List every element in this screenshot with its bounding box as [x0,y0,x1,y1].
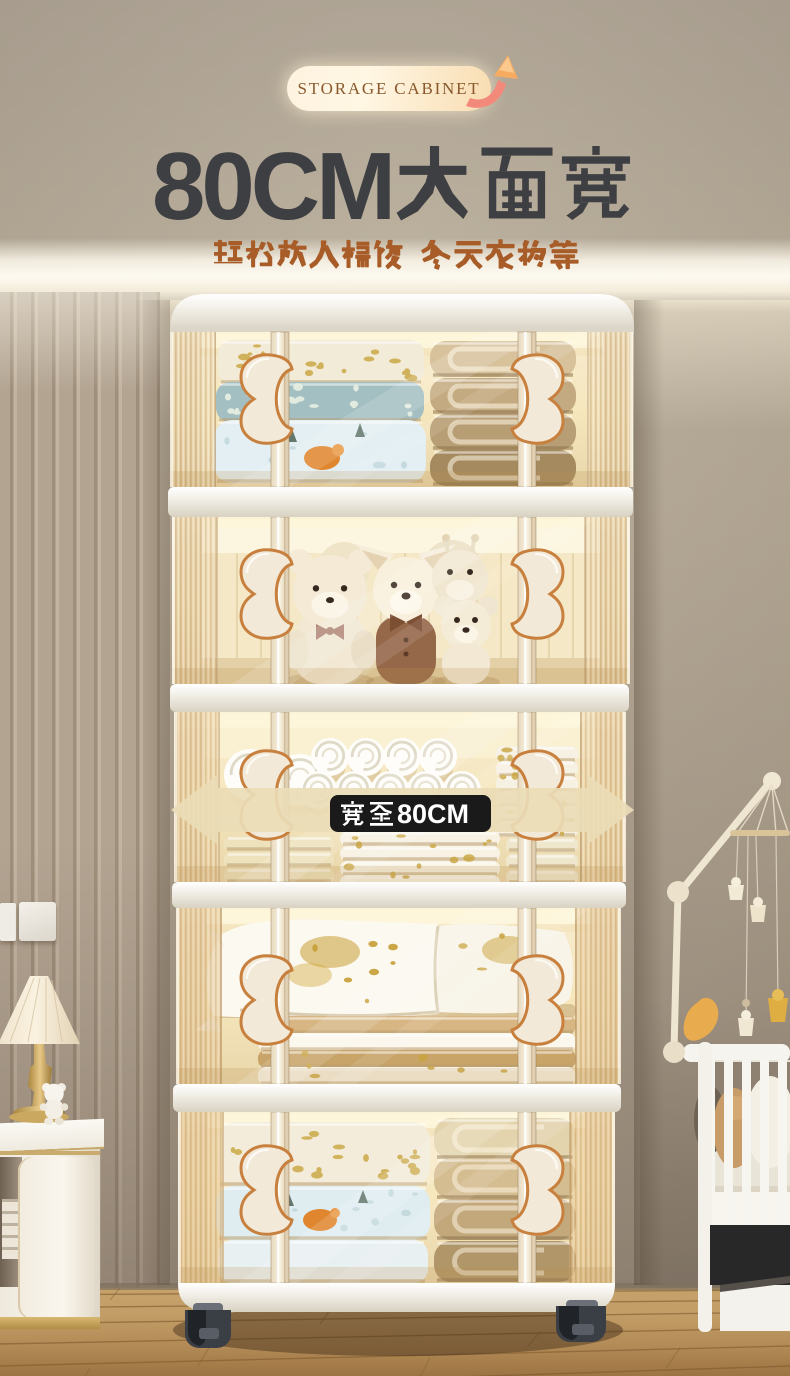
svg-text:80CM: 80CM [397,799,469,829]
svg-text:80CM: 80CM [152,138,392,233]
